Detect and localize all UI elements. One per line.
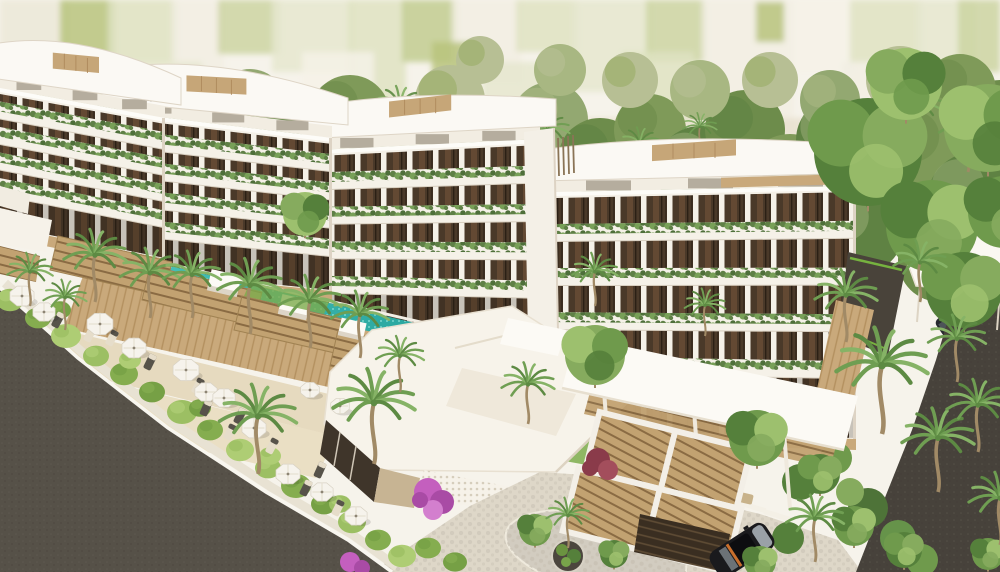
background-tree	[534, 44, 586, 96]
wicker-panel	[416, 134, 449, 144]
hedge-shrub	[83, 346, 109, 367]
wicker-panel	[340, 138, 373, 148]
wicker-panel	[122, 99, 147, 109]
wicker-panel	[276, 120, 308, 130]
architectural-rendering	[0, 0, 1000, 572]
window-band	[318, 222, 540, 242]
wicker-panel	[586, 180, 631, 190]
hedge-shrub	[365, 530, 391, 551]
skyline-tile	[218, 0, 280, 54]
hedge-shrub	[415, 538, 441, 559]
leafy-tree	[742, 546, 778, 572]
background-tree	[456, 36, 504, 84]
skyline-tile	[756, 2, 784, 42]
hedge-shrub	[139, 382, 165, 403]
background-tree	[742, 52, 798, 108]
hedge-shrub	[226, 439, 254, 461]
hedge-shrub	[388, 545, 416, 567]
skyline-tile	[108, 0, 178, 62]
balcony-planters	[318, 241, 540, 252]
background-tree	[670, 60, 730, 120]
hedge-shrub	[443, 552, 467, 571]
skyline-tile	[516, 0, 578, 52]
background-tree	[602, 52, 658, 108]
skyline-tile	[792, 0, 854, 72]
wicker-panel	[482, 131, 515, 141]
